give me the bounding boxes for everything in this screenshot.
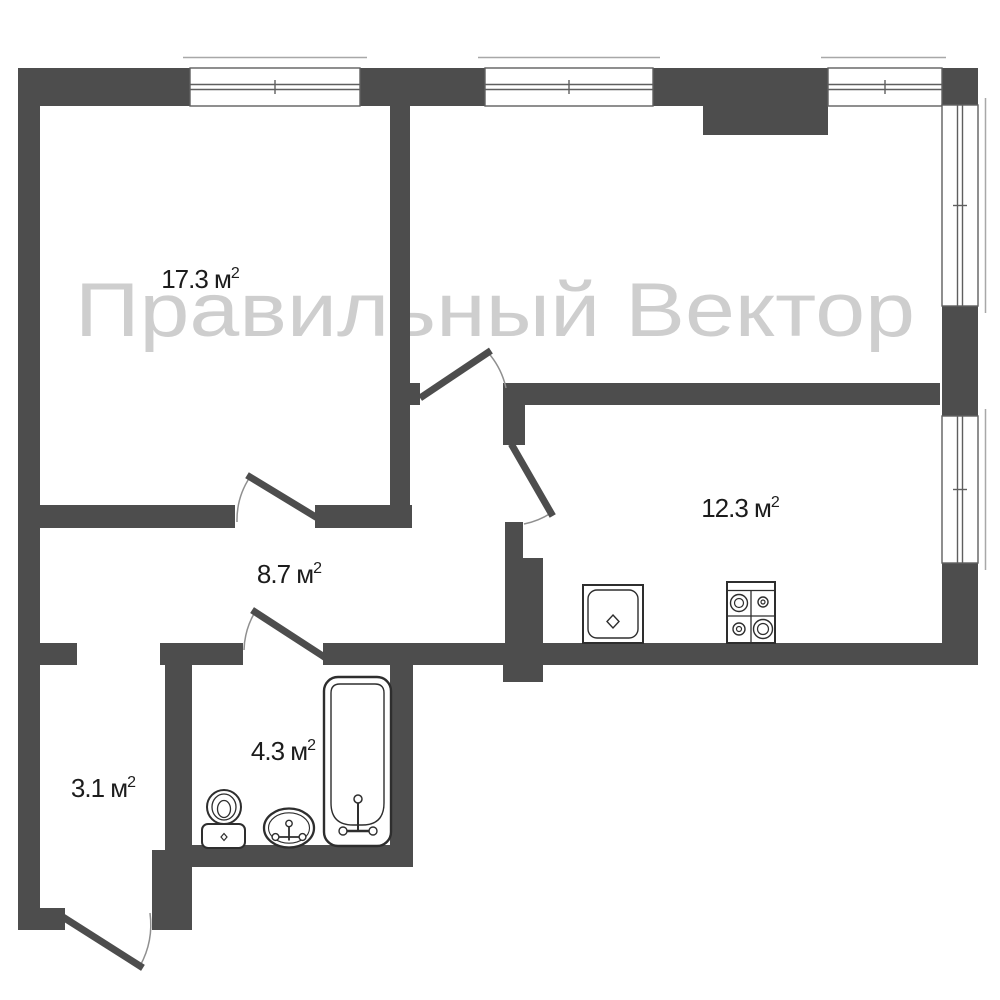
- window-top-3: [828, 68, 942, 106]
- bathtub-faucet-knob: [339, 827, 347, 835]
- burner: [735, 599, 744, 608]
- room-label-bathroom: 4.3 м2: [251, 736, 316, 766]
- burner: [761, 600, 765, 604]
- bathtub-icon: [324, 677, 391, 846]
- room-label-entry: 3.1 м2: [71, 773, 136, 803]
- top-wall-mid: [360, 68, 485, 106]
- kitchen-west-wall-lower: [505, 522, 523, 643]
- bedroom-door-leaf: [250, 477, 315, 517]
- bathroom-door-leaf: [255, 612, 322, 656]
- bedroom-living-divider: [390, 105, 410, 528]
- burner: [737, 627, 742, 632]
- window-right-2: [942, 416, 978, 563]
- room-label-bedroom: 17.3 м2: [161, 264, 240, 294]
- room-label-hallway: 8.7 м2: [257, 559, 322, 589]
- room-label-kitchen: 12.3 м2: [701, 493, 780, 523]
- fixtures: [202, 582, 775, 848]
- toilet-bowl-inner: [218, 801, 231, 818]
- kitchen-sink-icon: [583, 585, 643, 643]
- walls: [18, 68, 978, 930]
- left-wall: [18, 68, 40, 930]
- door-swing-arc: [140, 913, 151, 966]
- top-wall-seg: [653, 68, 703, 106]
- living-door-jamb: [390, 383, 420, 405]
- right-wall-mid: [942, 306, 978, 416]
- faucet-head: [286, 820, 292, 826]
- toilet-icon: [202, 790, 245, 848]
- window-top-1: [190, 68, 360, 106]
- top-right-corner: [942, 68, 978, 106]
- door-swing-arc: [488, 353, 506, 389]
- floor-plan-page: Правильный Вектор: [0, 0, 1000, 1000]
- entrance-door-leaf: [66, 919, 140, 966]
- floor-plan: Правильный Вектор: [0, 0, 1000, 1000]
- kitchen-door-leaf: [513, 447, 551, 513]
- window-top-2: [485, 68, 653, 106]
- bottom-wall-main: [323, 643, 978, 665]
- stove-icon: [727, 582, 775, 643]
- bathtub-faucet-knob: [369, 827, 377, 835]
- bedroom-bottom-wall-left: [18, 505, 235, 528]
- entry-bottom-wall: [18, 908, 65, 930]
- faucet-knob: [299, 834, 306, 841]
- bathroom-right-wall: [390, 643, 413, 867]
- entry-top-stub: [18, 643, 77, 665]
- kitchen-west-pilaster: [523, 558, 543, 643]
- kitchen-west-wall-upper: [503, 405, 525, 445]
- door-swing-arc: [244, 612, 255, 650]
- bathroom-sink-icon: [264, 809, 314, 848]
- vent-shaft-block: [703, 68, 828, 135]
- top-wall-left: [18, 68, 190, 106]
- bathtub-drain: [354, 795, 362, 803]
- bedroom-bottom-wall-right: [315, 505, 412, 528]
- burner: [758, 624, 769, 635]
- living-kitchen-wall: [503, 383, 940, 405]
- door-swing-arc: [524, 513, 551, 524]
- faucet-knob: [272, 834, 279, 841]
- living-door-leaf: [423, 353, 488, 397]
- south-pilaster: [503, 665, 543, 682]
- entry-bath-divider: [165, 643, 192, 850]
- door-swing-arc: [237, 477, 250, 522]
- window-right-1: [942, 105, 978, 306]
